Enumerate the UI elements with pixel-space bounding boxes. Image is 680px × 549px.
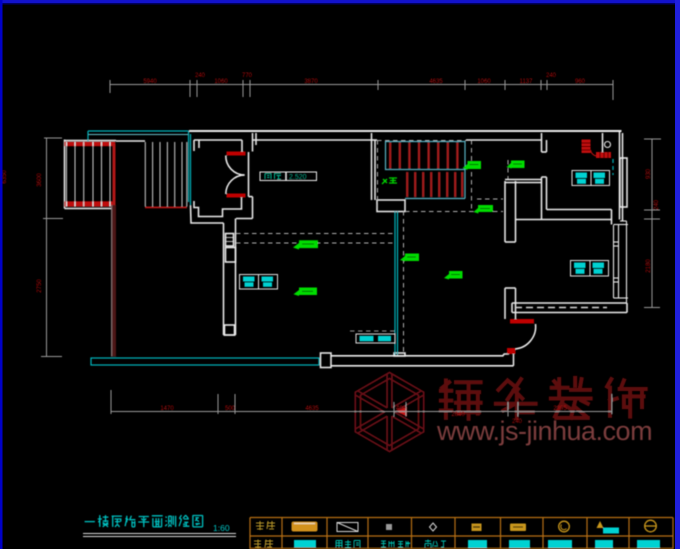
svg-text:2040: 2040 [451, 412, 465, 418]
svg-text:240: 240 [512, 419, 523, 425]
svg-text:1060: 1060 [477, 79, 491, 85]
svg-text:240: 240 [546, 73, 557, 79]
svg-text:2395: 2395 [553, 406, 567, 412]
svg-text:240: 240 [654, 199, 660, 210]
svg-text:1:60: 1:60 [213, 523, 230, 533]
svg-text:4635: 4635 [305, 406, 319, 412]
svg-text:1060: 1060 [214, 79, 228, 85]
svg-text:2750: 2750 [37, 279, 43, 293]
svg-text:960: 960 [575, 79, 586, 85]
svg-text:5940: 5940 [143, 79, 157, 85]
svg-text:500: 500 [225, 406, 236, 412]
svg-text:www.js-jinhua.com: www.js-jinhua.com [436, 416, 652, 446]
svg-text:4635: 4635 [429, 79, 443, 85]
svg-text:770: 770 [242, 73, 253, 79]
svg-text:3600: 3600 [37, 173, 43, 187]
svg-text:3870: 3870 [304, 79, 318, 85]
svg-text:400: 400 [396, 406, 407, 412]
svg-text:240: 240 [195, 73, 206, 79]
svg-text:2180: 2180 [646, 259, 652, 273]
svg-text:1470: 1470 [160, 406, 174, 412]
svg-text:2.520: 2.520 [289, 174, 307, 181]
svg-text:930: 930 [646, 168, 652, 179]
svg-text:6350: 6350 [2, 170, 8, 184]
svg-text:1137: 1137 [520, 79, 534, 85]
